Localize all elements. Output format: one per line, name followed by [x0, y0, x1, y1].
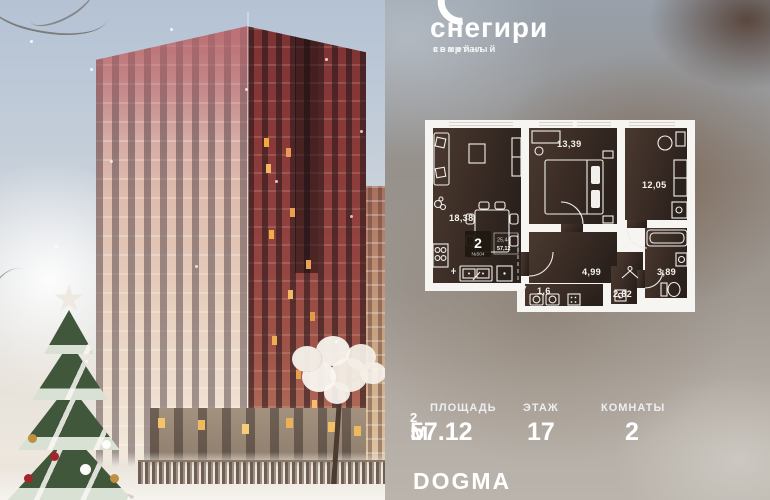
tree-branch	[340, 369, 372, 390]
ornament	[6, 282, 15, 291]
developer-logo: DOGMA	[413, 468, 511, 495]
badge-rooms-count: 2	[474, 235, 482, 251]
lit-windows	[264, 138, 269, 147]
snow-canopy	[292, 346, 322, 372]
rooms-value: 2	[625, 418, 639, 447]
area-label: ПЛОЩАДЬ	[430, 402, 497, 414]
snowflakes	[30, 40, 33, 43]
ground-floor-lit-windows	[158, 418, 165, 428]
ornament	[80, 464, 91, 475]
badge-unit-number: №504	[471, 252, 484, 258]
tagline-line: квартал	[433, 44, 484, 55]
ornament	[102, 440, 111, 449]
floor-plan-drawing: 2 №504 25,44 57,12 18,38 13,39 12,05 4,9…	[413, 114, 705, 326]
floor-value: 17	[527, 418, 555, 447]
tower-crown	[96, 26, 248, 136]
room-label-corridor: 2,82	[613, 289, 632, 299]
apartment-info-panel: снегири семейный квартал	[385, 0, 770, 500]
room-label-living: 18,38	[449, 213, 474, 223]
room-label-bedroom2: 12,05	[642, 180, 667, 190]
star-topper-icon	[54, 284, 84, 314]
ornament	[110, 474, 119, 483]
ornament	[28, 434, 37, 443]
listing-promo-card: снегири семейный квартал	[0, 0, 770, 500]
tree-branch	[319, 372, 347, 395]
room-label-laundry: 1,6	[537, 286, 551, 296]
badge-total-area: 57,12	[497, 246, 511, 252]
brand-wordmark: снегири	[430, 12, 548, 44]
building-photo	[0, 0, 385, 500]
floor-plan: 2 №504 25,44 57,12 18,38 13,39 12,05 4,9…	[413, 114, 705, 326]
christmas-tree	[6, 282, 140, 500]
apartment-stats: ПЛОЩАДЬ 57.12 м2 ЭТАЖ 17 КОМНАТЫ 2	[385, 400, 770, 456]
badge-living-area: 25,44	[497, 238, 511, 244]
tree-trunk	[331, 400, 342, 484]
room-label-bedroom: 13,39	[557, 139, 582, 149]
snowy-tree	[286, 338, 385, 486]
tree-tier	[44, 310, 94, 354]
glazed-balcony-column	[295, 10, 317, 273]
floor-label: ЭТАЖ	[523, 402, 559, 414]
room-label-hall: 4,99	[582, 267, 601, 277]
rooms-label: КОМНАТЫ	[601, 402, 665, 414]
ornament	[24, 474, 33, 483]
ornament	[50, 452, 59, 461]
area-superscript: 2	[410, 410, 417, 425]
area-value: 57.12 м2	[410, 418, 417, 447]
room-label-bathroom: 3,89	[657, 267, 676, 277]
